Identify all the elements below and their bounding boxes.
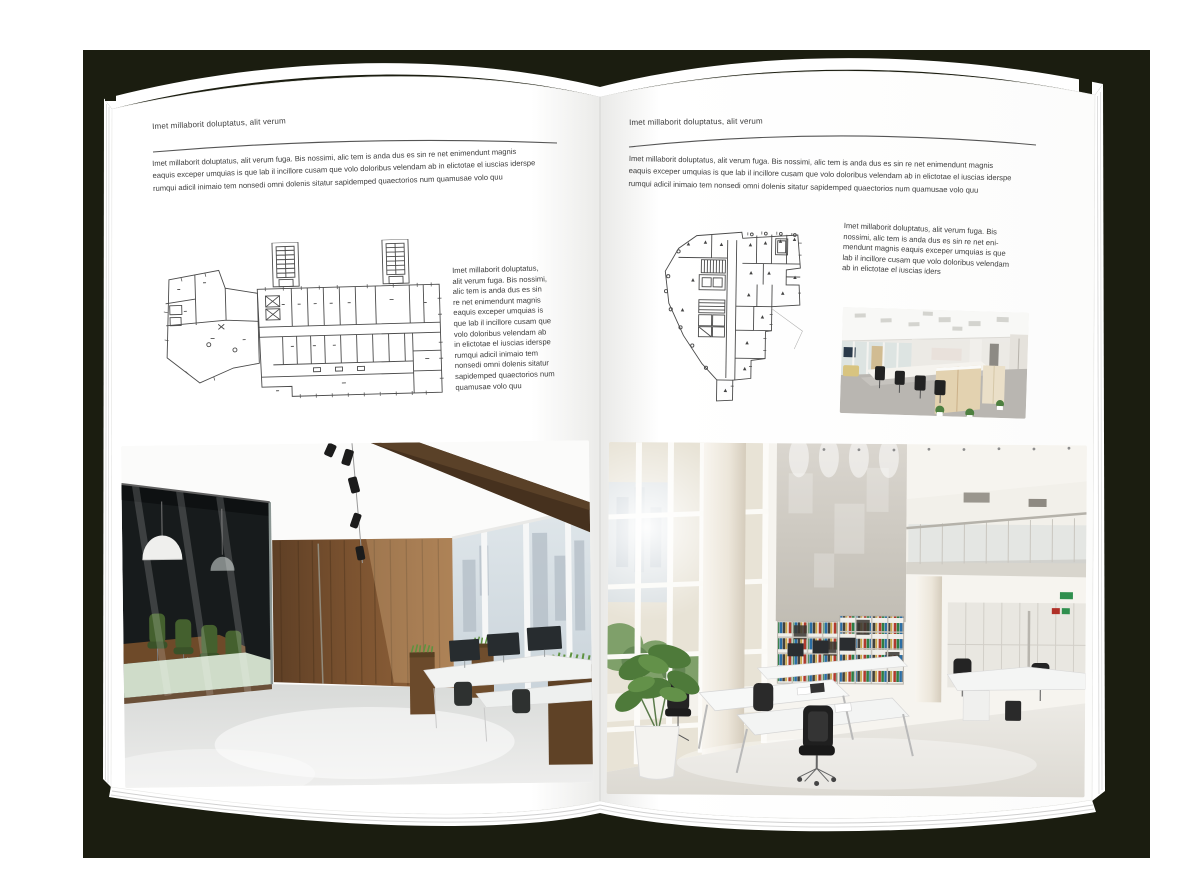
round-column [915, 576, 942, 702]
exit-sign [1060, 592, 1073, 599]
photo-open-plan-office-small [840, 307, 1029, 419]
left-page-edges [103, 99, 112, 787]
side-paragraph-right: Imet millaborit doluptatus, alit verum f… [842, 221, 1052, 283]
lounge-seat [843, 365, 859, 376]
magazine-spread-mockup: Imet millaborit doluptatus, alit verum I… [0, 0, 1200, 891]
photo-loft-office [121, 440, 593, 788]
photo-open-space-office [607, 442, 1087, 797]
plant-pot [635, 726, 679, 779]
fire-sign [1052, 608, 1060, 614]
waste-bin [1005, 701, 1021, 721]
floorplan-left-drawing [160, 238, 444, 404]
column [702, 443, 746, 761]
floorplan-right-drawing [649, 221, 812, 419]
column-markers [663, 231, 796, 371]
vent-grille [964, 492, 990, 502]
first-aid-sign [1062, 608, 1070, 614]
glass-meeting-room [121, 482, 272, 704]
side-paragraph-left: Imet millaborit doluptatus, alit verum f… [452, 262, 587, 393]
stair-tower-icon [272, 239, 409, 287]
